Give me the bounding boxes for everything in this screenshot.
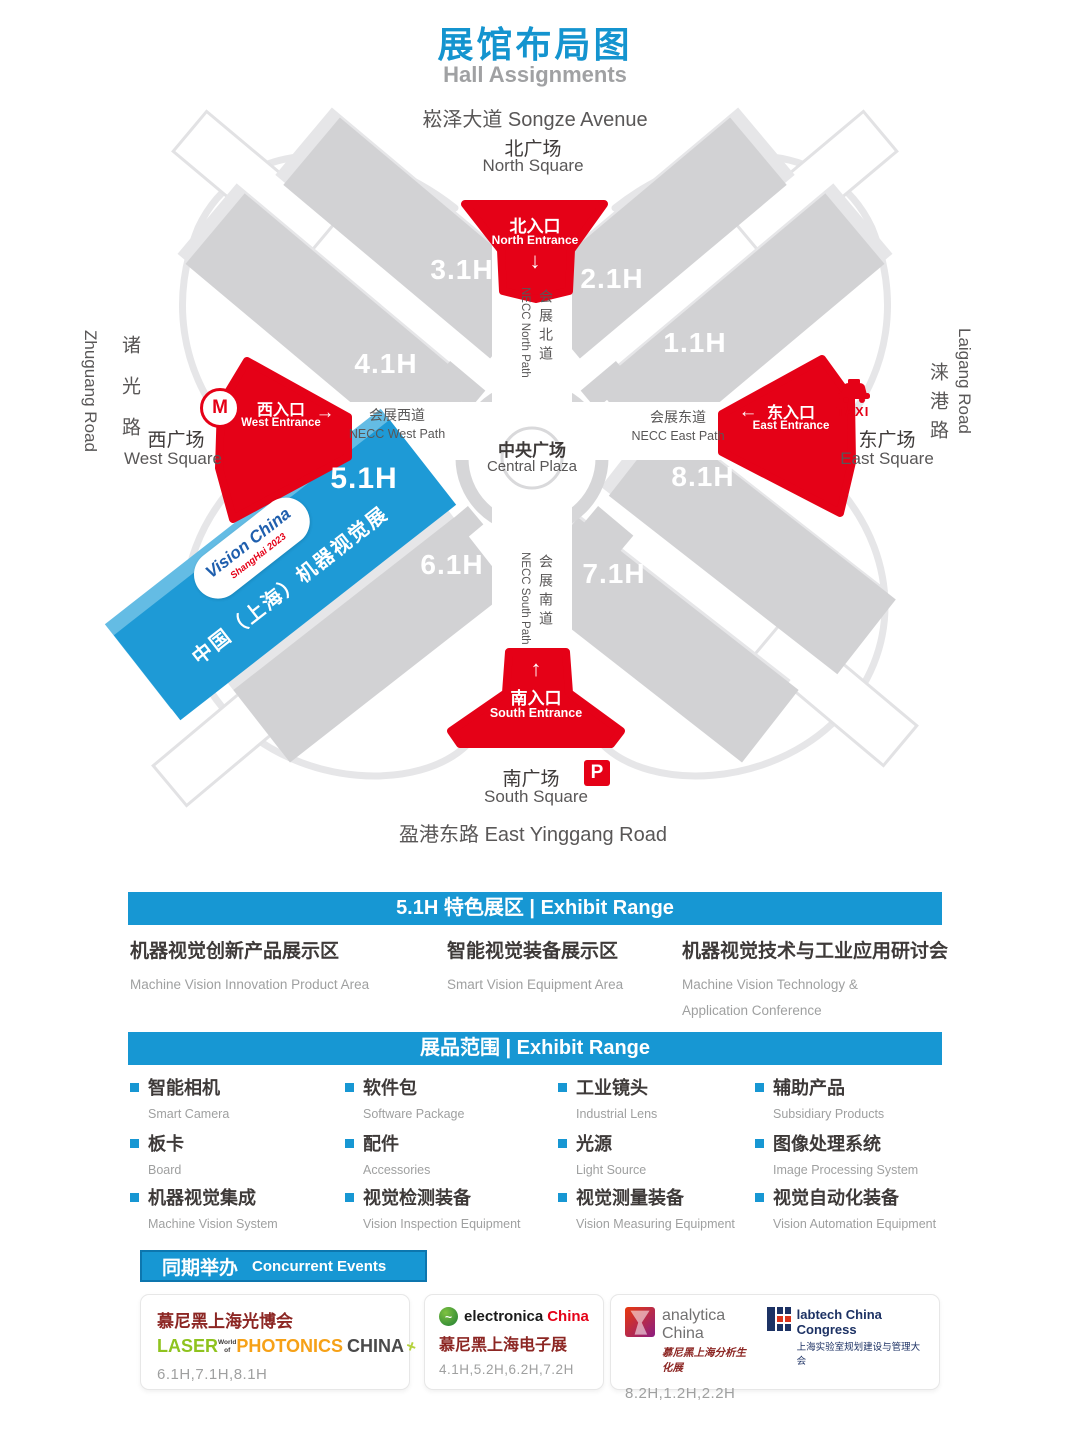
bullet-icon <box>345 1139 354 1148</box>
road-east-yinggang: 盈港东路 East Yinggang Road <box>399 818 667 847</box>
west-entrance-arrow-icon: → <box>316 402 335 424</box>
analytica-logo: analytica China 慕尼黑上海分析生化展 <box>625 1307 755 1375</box>
exhibit-item: 配件 Accessories <box>345 1130 430 1177</box>
necc-south-path-label-en: NECC South Path <box>519 552 531 645</box>
exhibit-item: 辅助产品 Subsidiary Products <box>755 1074 884 1121</box>
bullet-icon <box>755 1193 764 1202</box>
south-entrance-label-en: South Entrance <box>490 706 582 720</box>
labtech-logo: labtech China Congress 上海实验室规划建设与管理大会 <box>767 1307 925 1375</box>
necc-east-path-label-zh: 会展东道 <box>650 407 706 427</box>
bullet-icon <box>345 1193 354 1202</box>
event-halls: 6.1H,7.1H,8.1H <box>157 1366 393 1383</box>
event-card-electronica: ~ electronica China 慕尼黑上海电子展 4.1H,5.2H,6… <box>424 1294 604 1390</box>
electronica-logo: ~ electronica China <box>439 1307 589 1326</box>
east-square-label-zh: 东广场 <box>858 425 915 452</box>
event-title: 慕尼黑上海电子展 <box>439 1331 589 1355</box>
road-laigang-label-en: Laigang Road <box>954 328 974 434</box>
event-title: 慕尼黑上海光博会 <box>157 1307 393 1332</box>
road-zhuguang-label-en: Zhuguang Road <box>80 330 100 452</box>
hall-label-1-1h: 1.1H <box>663 327 726 359</box>
labtech-icon <box>767 1307 791 1331</box>
hall-label-4-1h: 4.1H <box>354 348 417 380</box>
hall-label-6-1h: 6.1H <box>420 549 483 581</box>
exhibit-item: 图像处理系统 Image Processing System <box>755 1130 918 1177</box>
necc-east-path-label-en: NECC East Path <box>631 429 724 443</box>
south-entrance-arrow-icon: ↑ <box>531 656 542 682</box>
featured-zone-item: 机器视觉技术与工业应用研讨会 Machine Vision Technology… <box>682 936 948 1024</box>
necc-west-path-label-zh: 会展西道 <box>369 405 425 425</box>
road-laigang-label-zh: 涞港路 <box>924 362 951 449</box>
necc-north-path-label-zh: 会展北道 <box>536 289 556 365</box>
analytica-labtech-logos: analytica China 慕尼黑上海分析生化展 labtech China… <box>625 1307 925 1375</box>
necc-south-path-label-zh: 会展南道 <box>536 554 556 630</box>
exhibit-item: 视觉测量装备 Vision Measuring Equipment <box>558 1184 735 1231</box>
hall-assignments-poster: 展馆布局图 Hall Assignments 崧泽大道 Songze Avenu… <box>0 0 1070 1436</box>
bullet-icon <box>130 1139 139 1148</box>
metro-icon: M <box>200 388 240 428</box>
featured-zone-item: 机器视觉创新产品展示区 Machine Vision Innovation Pr… <box>130 936 369 998</box>
exhibit-item: 软件包 Software Package <box>345 1074 464 1121</box>
exhibit-item: 工业镜头 Industrial Lens <box>558 1074 657 1121</box>
exhibit-item: 光源 Light Source <box>558 1130 646 1177</box>
hall-label-7-1h: 7.1H <box>582 558 645 590</box>
west-square-label-en: West Square <box>124 449 222 469</box>
featured-zone-item: 智能视觉装备展示区 Smart Vision Equipment Area <box>447 936 623 998</box>
bullet-icon <box>130 1083 139 1092</box>
exhibit-item: 智能相机 Smart Camera <box>130 1074 229 1121</box>
north-square-label-en: North Square <box>482 156 583 176</box>
bullet-icon <box>558 1193 567 1202</box>
north-entrance-label-en: North Entrance <box>492 233 579 247</box>
laser-photonics-logo: LASER World of PHOTONICS CHINA + <box>157 1336 393 1357</box>
exhibit-range-header: 展品范围 | Exhibit Range <box>128 1032 942 1065</box>
electronica-wave-icon: ~ <box>439 1307 458 1326</box>
bullet-icon <box>558 1139 567 1148</box>
bullet-icon <box>755 1083 764 1092</box>
exhibit-item: 板卡 Board <box>130 1130 184 1177</box>
event-card-laser-photonics: 慕尼黑上海光博会 LASER World of PHOTONICS CHINA … <box>140 1294 410 1390</box>
event-halls: 8.2H,1.2H,2.2H <box>625 1385 925 1402</box>
exhibit-item: 视觉检测装备 Vision Inspection Equipment <box>345 1184 521 1231</box>
bullet-icon <box>558 1083 567 1092</box>
exhibit-item: 视觉自动化装备 Vision Automation Equipment <box>755 1184 936 1231</box>
event-card-analytica-labtech: analytica China 慕尼黑上海分析生化展 labtech China… <box>610 1294 940 1390</box>
west-entrance-label-en: West Entrance <box>241 417 321 429</box>
road-songze-avenue: 崧泽大道 Songze Avenue <box>422 103 647 132</box>
concurrent-events-header: 同期举办 Concurrent Events <box>140 1250 427 1282</box>
bullet-icon <box>130 1193 139 1202</box>
event-halls: 4.1H,5.2H,6.2H,7.2H <box>439 1362 589 1377</box>
bullet-icon <box>755 1139 764 1148</box>
hall-label-3-1h: 3.1H <box>430 254 493 286</box>
taxi-label: TAXI <box>837 404 870 419</box>
central-plaza-label-en: Central Plaza <box>487 458 577 475</box>
road-zhuguang-label-zh: 诸光路 <box>116 335 143 458</box>
exhibit-item: 机器视觉集成 Machine Vision System <box>130 1184 278 1231</box>
hall-label-5-1h: 5.1H <box>330 462 397 496</box>
analytica-icon <box>625 1307 655 1337</box>
hall-label-8-1h: 8.1H <box>671 461 734 493</box>
parking-icon: P <box>584 760 610 786</box>
south-square-label-en: South Square <box>484 787 588 807</box>
east-entrance-arrow-icon: ← <box>739 401 758 423</box>
east-entrance-label-en: East Entrance <box>753 420 830 432</box>
page-subtitle: Hall Assignments <box>443 62 627 88</box>
page-title: 展馆布局图 <box>437 16 632 68</box>
bullet-icon <box>345 1083 354 1092</box>
necc-north-path-label-en: NECC North Path <box>519 287 531 378</box>
west-square-label-zh: 西广场 <box>147 425 204 452</box>
east-square-label-en: East Square <box>840 449 934 469</box>
hall-label-2-1h: 2.1H <box>580 263 643 295</box>
north-entrance-arrow-icon: ↓ <box>530 248 541 274</box>
necc-west-path-label-en: NECC West Path <box>349 427 445 441</box>
featured-zone-header: 5.1H 特色展区 | Exhibit Range <box>128 892 942 925</box>
